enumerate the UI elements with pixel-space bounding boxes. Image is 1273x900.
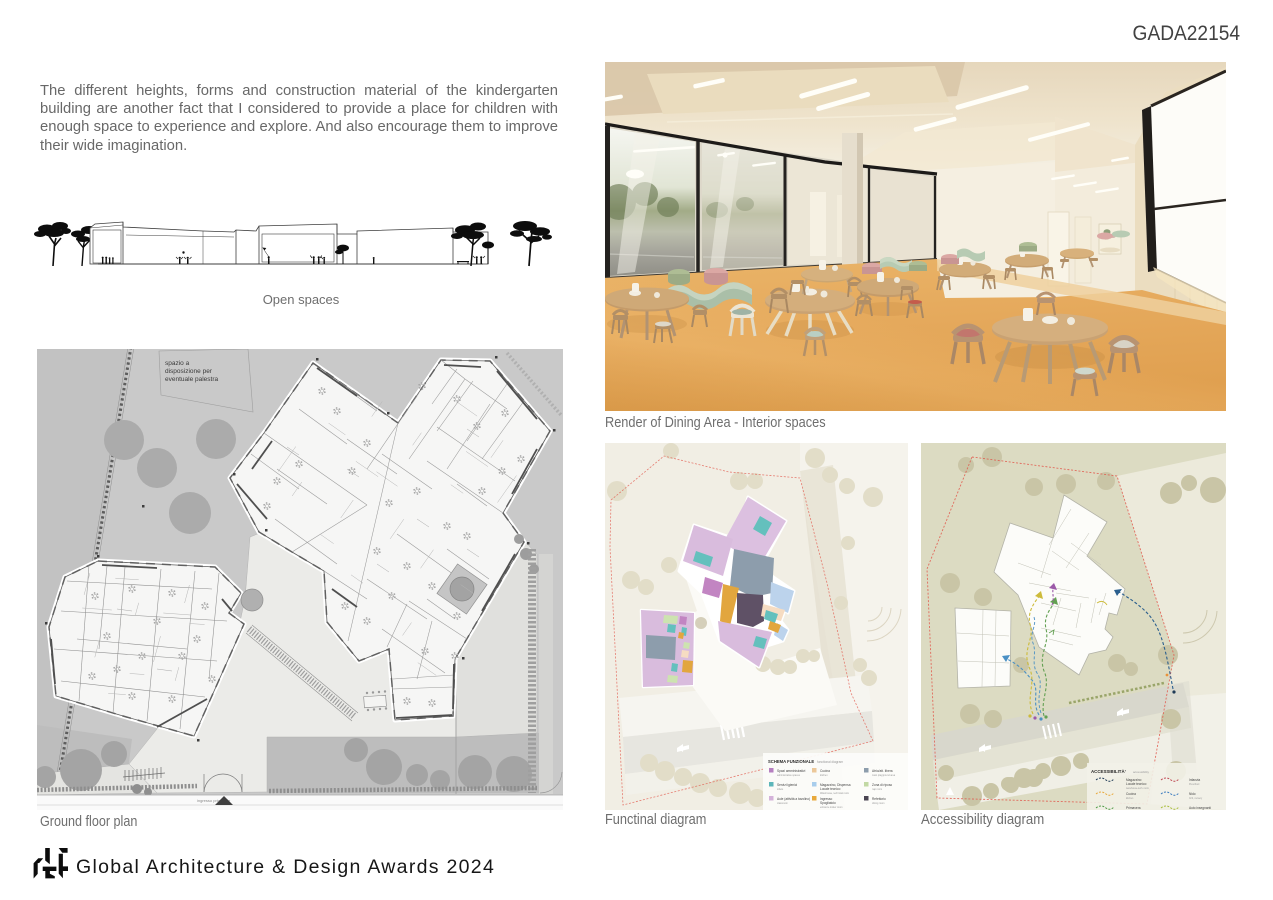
svg-text:Crib, nursery: Crib, nursery bbox=[1189, 797, 1203, 800]
svg-text:Cucina: Cucina bbox=[820, 769, 830, 773]
svg-text:main playground area: main playground area bbox=[872, 774, 896, 777]
svg-text:nap room: nap room bbox=[872, 788, 882, 791]
svg-text:Aule (attività a tavolino): Aule (attività a tavolino) bbox=[777, 797, 810, 801]
svg-text:eventuale palestra: eventuale palestra bbox=[165, 376, 219, 383]
svg-text:Locale tecnico: Locale tecnico bbox=[820, 787, 841, 791]
svg-text:Atrio/att. libera: Atrio/att. libera bbox=[872, 769, 893, 773]
svg-text:Refettorio: Refettorio bbox=[872, 797, 886, 801]
svg-text:disposizione per: disposizione per bbox=[165, 368, 213, 375]
svg-text:dining room: dining room bbox=[872, 802, 885, 805]
svg-text:Cucina: Cucina bbox=[1126, 792, 1136, 796]
svg-text:Locale tecnico: Locale tecnico bbox=[1126, 782, 1147, 786]
svg-text:functional diagram: functional diagram bbox=[817, 760, 843, 764]
svg-text:ACCESSIBILITÀ’: ACCESSIBILITÀ’ bbox=[1091, 769, 1126, 774]
svg-text:Nido: Nido bbox=[1189, 792, 1196, 796]
svg-text:Preschool: Preschool bbox=[1189, 783, 1200, 786]
svg-text:Auto insegnanti: Auto insegnanti bbox=[1189, 806, 1211, 810]
svg-text:Primavera: Primavera bbox=[1126, 806, 1141, 810]
svg-text:Zona di riposo: Zona di riposo bbox=[872, 783, 892, 787]
svg-text:Spogliatoio: Spogliatoio bbox=[820, 801, 836, 805]
svg-text:Spazi amministrativi: Spazi amministrativi bbox=[777, 769, 806, 773]
svg-text:SCHEMA FUNZIONALE: SCHEMA FUNZIONALE bbox=[768, 759, 814, 764]
svg-text:Infanzia: Infanzia bbox=[1189, 778, 1200, 782]
svg-text:Warehouse, technical room: Warehouse, technical room bbox=[820, 792, 849, 795]
svg-text:entrance locker room: entrance locker room bbox=[820, 806, 842, 809]
svg-text:kitchen: kitchen bbox=[820, 774, 828, 777]
svg-text:toilets: toilets bbox=[777, 788, 784, 791]
svg-text:accessibility: accessibility bbox=[1133, 770, 1150, 774]
svg-text:Servizi igienici: Servizi igienici bbox=[777, 783, 797, 787]
svg-text:administrative spaces: administrative spaces bbox=[777, 774, 801, 777]
svg-text:kitchen: kitchen bbox=[1126, 797, 1134, 800]
svg-text:spazio a: spazio a bbox=[165, 360, 190, 367]
svg-text:warehouse-tech. room: warehouse-tech. room bbox=[1126, 787, 1149, 790]
svg-text:classroom: classroom bbox=[777, 802, 788, 805]
